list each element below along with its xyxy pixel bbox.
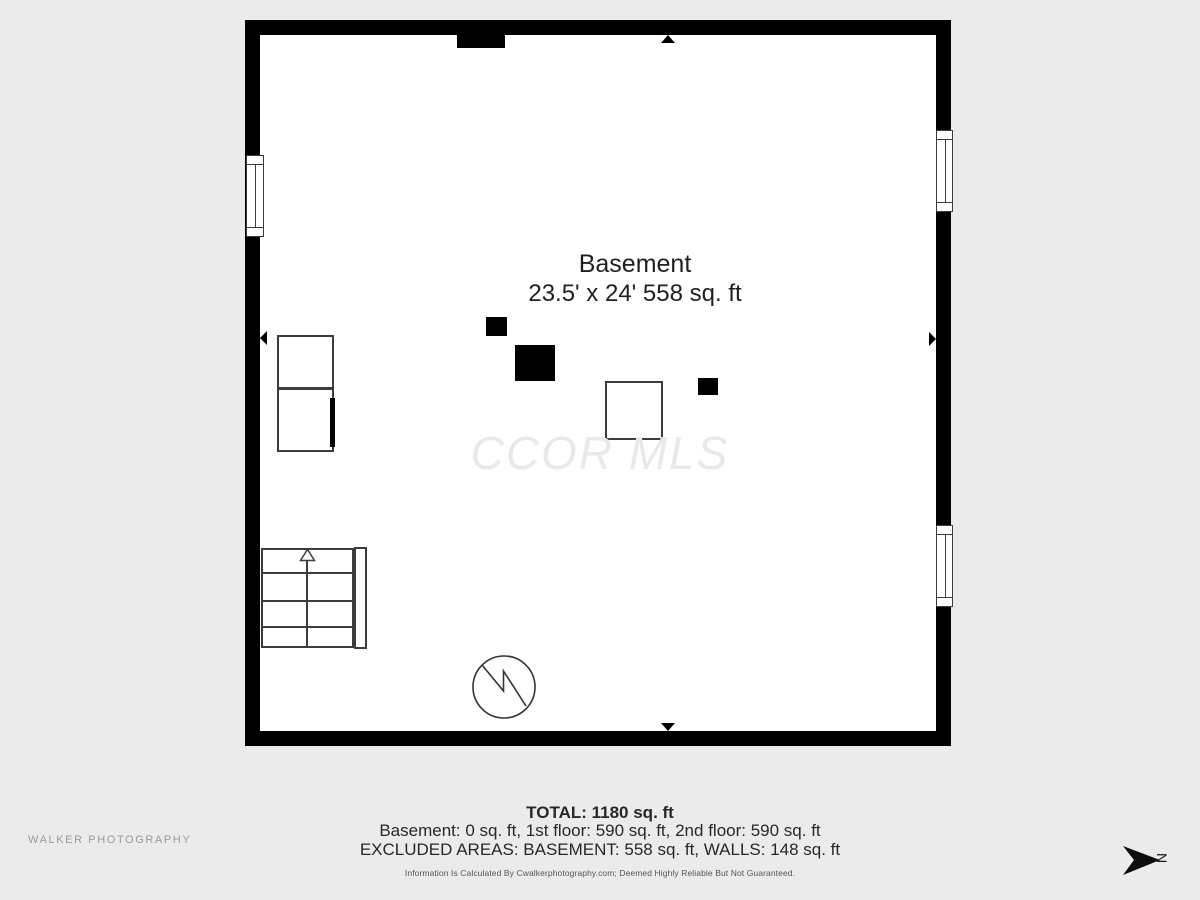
window-mullion [945, 535, 946, 597]
window-mullion [945, 140, 946, 202]
summary-excluded-areas: EXCLUDED AREAS: BASEMENT: 558 sq. ft, WA… [250, 841, 950, 860]
support-post [698, 378, 718, 395]
window-icon [936, 130, 953, 212]
summary-total: TOTAL: 1180 sq. ft [250, 803, 950, 822]
stair-side-strip [354, 547, 367, 649]
support-post [486, 317, 507, 336]
summary-floor-breakdown: Basement: 0 sq. ft, 1st floor: 590 sq. f… [250, 822, 950, 841]
staircase [261, 548, 354, 648]
utility-box [277, 335, 334, 389]
window-icon [246, 155, 264, 237]
wall-arrow-left-icon [260, 331, 267, 345]
room-dimensions: 23.5' x 24' 558 sq. ft [420, 279, 850, 308]
room-label: Basement 23.5' x 24' 558 sq. ft [420, 250, 850, 308]
photographer-credit: WALKER PHOTOGRAPHY [28, 834, 191, 846]
window-mullion [255, 165, 256, 227]
stair-up-arrow-icon [299, 548, 316, 562]
sump-pump-icon [470, 650, 540, 722]
wall-arrow-down-icon [661, 723, 675, 731]
room-name: Basement [420, 250, 850, 279]
window-icon [936, 525, 953, 607]
mls-watermark: CCOR MLS [300, 426, 900, 480]
wall-arrow-up-icon [661, 35, 675, 43]
floor-plan-page: CCOR MLS Basement 23.5' x 24' 558 sq. ft… [0, 0, 1200, 900]
north-label: N [1154, 853, 1170, 863]
summary-disclaimer: Information Is Calculated By Cwalkerphot… [250, 868, 950, 878]
chimney-notch [457, 35, 505, 48]
wall-arrow-right-icon [929, 332, 936, 346]
stair-centerline [306, 550, 308, 646]
area-summary: TOTAL: 1180 sq. ft Basement: 0 sq. ft, 1… [250, 803, 950, 878]
support-post [515, 345, 555, 381]
